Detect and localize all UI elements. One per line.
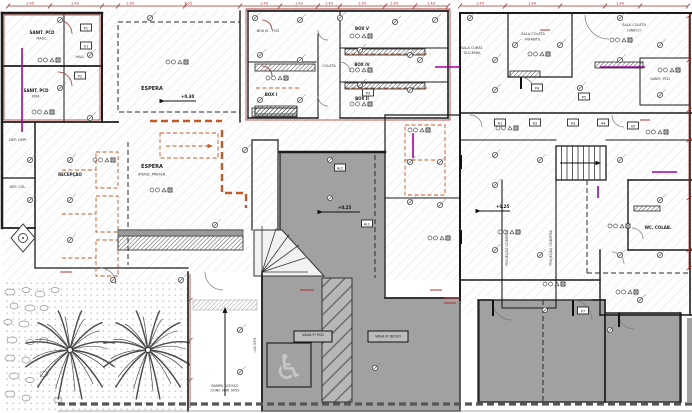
opening-tag-label: P1 [84, 26, 88, 30]
label-sanit-masc-2: MASC. [36, 37, 47, 41]
label-proj-coberta-1: PROJEÇÃO COBERTA [504, 230, 509, 266]
floor-plan-canvas: ♿ VAGA P/ PCD ESPERA VAGA P/ IDOSO P1V1P… [0, 0, 692, 413]
parking-sign-pcd-label: VAGA P/ PCD [302, 333, 324, 337]
opening-tag: V1 [81, 42, 92, 49]
opening-tag: P7 [578, 307, 589, 314]
opening-tag: P5 [579, 93, 590, 100]
opening-tag: P4 [532, 84, 543, 91]
opening-tag-label: ALC [337, 166, 344, 170]
opening-tag-label: A5 [631, 124, 635, 128]
label-dep-limp: DEP. LIMP. [9, 138, 26, 142]
wheelchair-icon: ♿ [274, 348, 304, 388]
opening-tag: A2 [530, 119, 541, 126]
label-box-iv: BOX IV [354, 62, 370, 67]
opening-tag-label: P4 [535, 86, 539, 90]
opening-tag: A1 [495, 119, 506, 126]
opening-tag-label: P5 [582, 95, 586, 99]
garage-right [605, 313, 681, 402]
label-espera-top: ESPERA [141, 86, 163, 92]
label-sanit-fem: SANIT. PCD [23, 88, 49, 93]
label-sala-infantil-2: INFANTIL [525, 38, 541, 42]
label-recepcao: RECEPÇÃO [58, 172, 82, 177]
dimension-text: 1.40 [616, 2, 625, 6]
opening-tag-label: ALC [364, 222, 371, 226]
label-hall: HALL [76, 55, 85, 59]
label-dep-col: DEP. COL. [10, 185, 27, 189]
edge-paving [687, 318, 692, 402]
opening-tag: ALC [362, 220, 373, 227]
opening-tag: ALC [335, 164, 346, 171]
level-espera: +0.30 [181, 94, 194, 99]
label-coleta: COLETA [322, 64, 336, 68]
label-sala-gineco: SALA COLETA [622, 23, 646, 27]
dimension-text: 1.45 [390, 2, 398, 6]
opening-tag-label: V1 [84, 44, 88, 48]
label-box-i: BOX I [265, 92, 278, 97]
level-plaza: +0.25 [338, 205, 351, 210]
label-wc-colab: WC. COLAB. [645, 225, 672, 230]
label-box-iii: BOX III - PCD [257, 29, 280, 33]
label-rampa-2: CONF. NBR 9050 [211, 389, 240, 393]
opening-tag-label: A4 [601, 121, 605, 125]
label-sala-curat: SALA CURAT. [461, 46, 484, 50]
label-rampa-slope: i=8.33% [253, 337, 257, 353]
label-espera-mid: ESPERA [141, 164, 163, 170]
label-sanit-masc: SANIT. PCD [29, 30, 55, 35]
opening-tag: A3 [568, 119, 579, 126]
dimension-text: 1.45 [476, 2, 484, 6]
opening-tag: P2 [75, 72, 86, 79]
opening-tag-label: A3 [571, 121, 575, 125]
label-sanit-pcd: SANIT. PCD [650, 77, 670, 81]
label-sanit-fem-2: FEM. [32, 95, 40, 99]
label-proj-coberta-2: PROJEÇÃO COBERTA [548, 230, 553, 266]
dimension-text: 1.45 [325, 2, 333, 6]
dimension-text: 1.40 [71, 2, 80, 6]
opening-tag-label: A1 [498, 121, 502, 125]
label-sala-infantil: SALA COLETA [521, 32, 545, 36]
label-sala-curat-2: GLICEMIA [464, 51, 481, 55]
opening-tag: A5 [628, 122, 639, 129]
parking-sign-idoso-label: VAGA P/ IDOSO [375, 335, 401, 339]
dimension-text: 3.05 [184, 2, 192, 6]
label-atend: ATEND. PREFER. [138, 173, 166, 177]
dimension-text: 1.40 [260, 2, 269, 6]
opening-tag-label: P7 [581, 309, 585, 313]
label-box-v: BOX V [355, 26, 370, 31]
label-rampa: RAMPA ACESSO [211, 384, 239, 388]
dimension-texts: 1.451.401.403.051.401.401.451.401.451.40… [26, 2, 625, 6]
dimension-text: 1.40 [358, 2, 367, 6]
opening-tag-label: P2 [78, 74, 82, 78]
parking-sign-idoso: VAGA P/ IDOSO [368, 331, 408, 342]
dimension-text: 1.40 [295, 2, 304, 6]
floor-plan-page: ♿ VAGA P/ PCD ESPERA VAGA P/ IDOSO P1V1P… [0, 0, 692, 413]
dimension-text: 1.40 [528, 2, 537, 6]
opening-tag: A4 [598, 119, 609, 126]
label-box-ii: BOX II [355, 96, 369, 101]
label-sala-gineco-2: GINECO [627, 29, 641, 33]
garage-left [479, 300, 605, 402]
dimension-text: 1.40 [126, 2, 135, 6]
level-corredor: +0.25 [496, 204, 509, 209]
parking-sign-pcd: VAGA P/ PCD ESPERA [294, 331, 332, 342]
opening-tag-label: A2 [533, 121, 537, 125]
opening-tag: P1 [81, 24, 92, 31]
opening-tag-label: P3 [366, 91, 370, 95]
dimension-text: 1.40 [427, 2, 436, 6]
opening-tag: P3 [363, 89, 374, 96]
dimension-text: 1.45 [26, 2, 34, 6]
